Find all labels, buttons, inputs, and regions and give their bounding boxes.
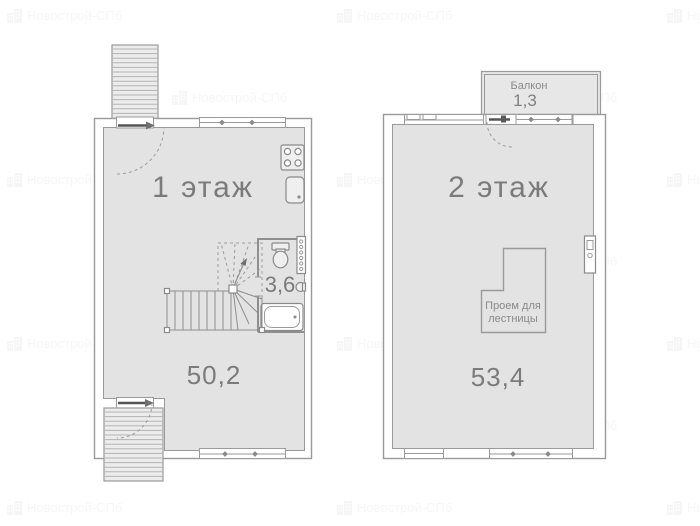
floorplan-drawing: 1 этаж 50,2 3,6 Балкон 1,3	[0, 0, 700, 526]
floor1-bottom-entry-door	[117, 398, 155, 409]
wall-basin	[296, 283, 306, 292]
balcony: Балкон 1,3	[482, 72, 601, 115]
floor2-plan: Балкон 1,3	[384, 72, 606, 459]
floor1-bottom-window	[200, 449, 286, 459]
floor1-bottom-porch	[104, 403, 163, 481]
floor1-top-porch	[112, 45, 158, 118]
stove	[281, 145, 304, 170]
floor2-top-window	[405, 115, 484, 125]
floor2-bottom-window-small	[405, 449, 444, 459]
bathroom-area: 3,6	[265, 272, 296, 297]
stair-opening-label-2: лестницы	[488, 313, 538, 325]
floor2-title: 2 этаж	[448, 171, 550, 204]
bathtub	[261, 304, 303, 331]
stair-opening-label-1: Проем для	[485, 300, 541, 312]
kitchen-sink	[286, 177, 304, 203]
floor2-bottom-window-wide	[490, 449, 573, 459]
floor1-title: 1 этаж	[152, 171, 254, 204]
towel-ladder	[297, 237, 306, 274]
floorplan-canvas: Новострой-СПбНовострой-СПбНовострой-СПбН…	[0, 0, 700, 526]
balcony-area: 1,3	[513, 91, 537, 110]
floor1-plan: 1 этаж 50,2 3,6	[95, 45, 312, 481]
floor1-top-window	[200, 118, 286, 128]
wall-unit	[585, 236, 596, 273]
floor2-area: 53,4	[471, 362, 526, 392]
toilet	[272, 243, 289, 268]
floor1-area: 50,2	[187, 360, 242, 390]
